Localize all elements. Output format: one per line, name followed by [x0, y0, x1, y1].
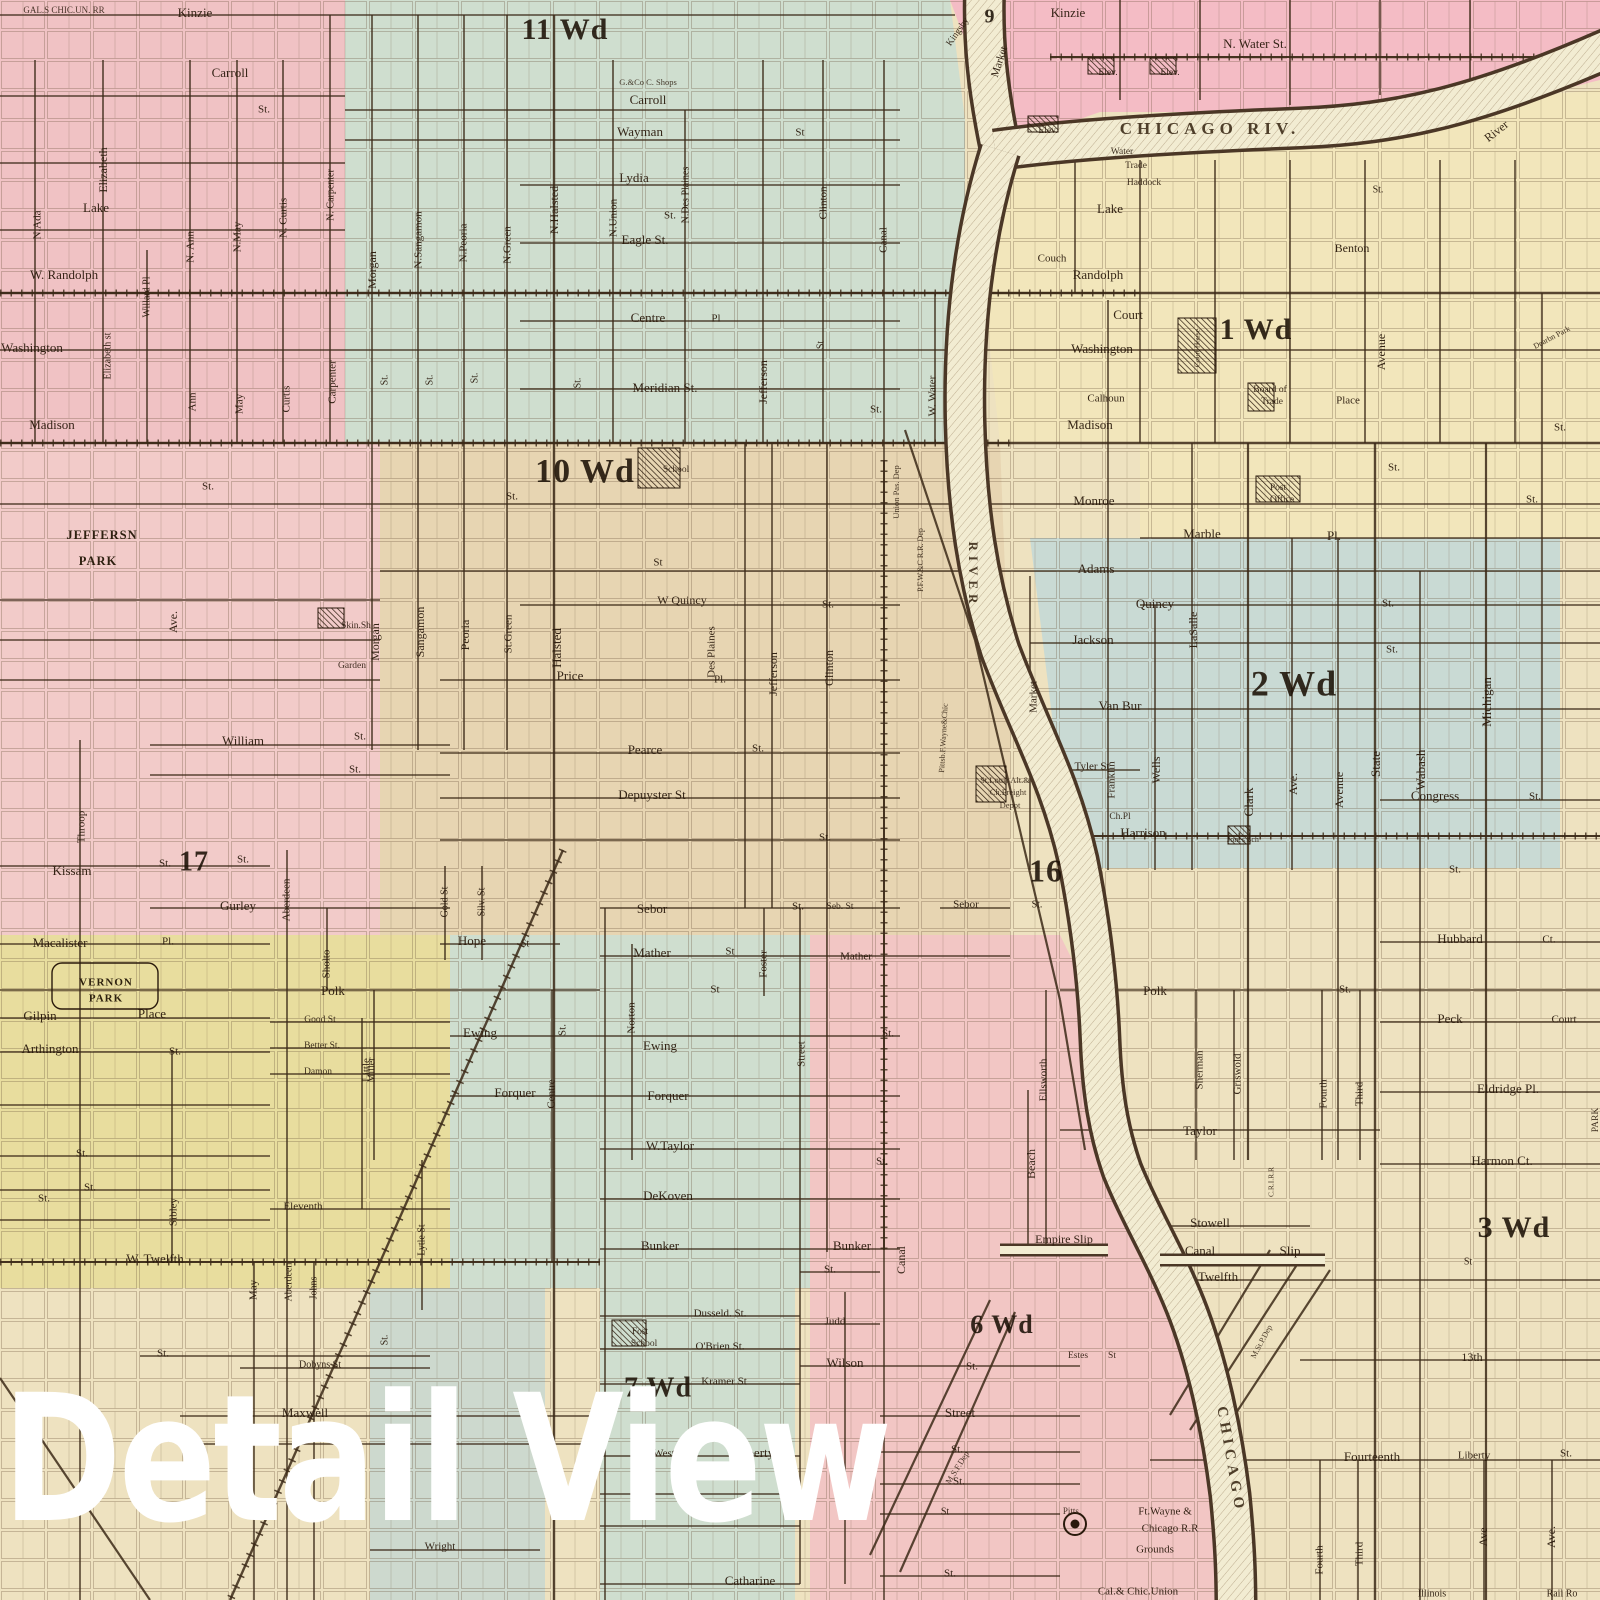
map-label: St. — [1032, 899, 1043, 910]
map-label: Quincy — [1136, 596, 1175, 611]
map-label: Peoria — [458, 619, 472, 650]
map-label: Calhoun — [1087, 393, 1125, 405]
map-label: St. — [1386, 644, 1398, 656]
map-label: St. — [349, 764, 361, 776]
map-label: St. — [752, 743, 764, 755]
map-label: Lake — [1097, 201, 1123, 216]
map-label: Empire Slip — [1035, 1232, 1093, 1246]
map-label: 2 Wd — [1251, 663, 1337, 703]
map-label: 10 Wd — [535, 453, 635, 490]
map-label: Illinois — [1418, 1588, 1446, 1599]
map-label: Depuyster St — [618, 787, 686, 802]
map-label: St.Green — [503, 614, 515, 653]
map-label: Des Plaines — [706, 626, 718, 678]
map-label: Ch.Pl — [1109, 812, 1131, 822]
map-label: St. — [379, 1335, 390, 1346]
map-label: St. — [664, 210, 676, 222]
map-label: St. — [1449, 864, 1461, 876]
map-label: Place — [1336, 395, 1360, 407]
map-label: Wabash — [1413, 749, 1428, 790]
map-label: Silv. St — [476, 887, 487, 916]
map-label: Forquer — [494, 1085, 536, 1100]
map-label: 16 — [1029, 852, 1063, 888]
map-label: Ct. — [1542, 934, 1555, 946]
map-label: St. — [1529, 791, 1541, 803]
map-label: Chicago R.R — [1142, 1523, 1199, 1535]
map-label: Carroll — [212, 65, 249, 80]
map-label: Monroe — [1073, 493, 1114, 508]
map-label: St.Louis Alt.& — [980, 775, 1030, 785]
map-label: Fourth — [1314, 1545, 1326, 1575]
map-label: Ellsworth — [1038, 1058, 1050, 1101]
map-label: Cal.& Chic.Union — [1098, 1586, 1179, 1598]
map-label: Gurley — [220, 898, 257, 913]
map-label: Twelfth — [1198, 1269, 1239, 1284]
map-label: Peck — [1437, 1011, 1463, 1026]
map-label: Halsted — [549, 628, 564, 668]
map-label: Court — [1551, 1014, 1576, 1026]
overlay-title: Detail View — [2, 1372, 889, 1548]
map-label: Centre — [546, 1079, 558, 1108]
map-label: Place — [138, 1006, 166, 1021]
map-label: W.Taylor — [646, 1138, 695, 1153]
map-label: N.Peoria — [458, 223, 470, 262]
map-label: Polk — [321, 983, 345, 998]
map-label: Canal — [1185, 1243, 1216, 1258]
map-label: Fourteenth — [1344, 1449, 1401, 1464]
map-label: Street — [945, 1405, 976, 1420]
map-label: Ann — [187, 392, 199, 411]
map-label: St. — [76, 1148, 88, 1160]
map-label: St. — [1339, 984, 1351, 996]
map-label: Elev. — [1160, 68, 1179, 78]
map-label: Aberdeen — [281, 878, 293, 921]
map-label: St. — [557, 1024, 569, 1036]
map-label: St. — [469, 373, 480, 384]
map-label: St. — [354, 731, 366, 743]
map-label: St. — [237, 854, 249, 866]
map-label: St — [653, 557, 662, 569]
map-label: DeKoven — [643, 1188, 693, 1203]
map-label: St. — [876, 1156, 888, 1168]
map-label: Seb. St — [827, 902, 854, 912]
map-label: Taylor — [1183, 1123, 1217, 1138]
map-label: Eleventh — [283, 1201, 323, 1213]
map-label: Centre — [631, 310, 666, 325]
map-label: 9 — [985, 6, 996, 28]
map-label: Price — [557, 668, 584, 683]
map-label: 17 — [179, 846, 209, 877]
map-label: O'Brien St. — [695, 1341, 744, 1353]
map-label: St. — [84, 1182, 96, 1194]
map-label: St. — [159, 858, 171, 870]
map-label: Wayman — [617, 124, 663, 139]
map-label: Fost — [632, 1327, 649, 1337]
map-label: St. — [824, 1264, 836, 1276]
map-label: St. — [38, 1193, 50, 1205]
map-label: May — [234, 393, 246, 414]
map-label: N.Sangamon — [413, 211, 425, 269]
map-label: St — [725, 946, 734, 958]
map-label: Pl — [711, 313, 720, 325]
map-label: State — [1368, 751, 1383, 777]
map-label: Harmon Ct. — [1471, 1153, 1532, 1168]
map-label: Van Bur — [1099, 698, 1143, 713]
map-label: Hope — [458, 933, 486, 948]
map-label: 13th — [1461, 1350, 1482, 1364]
map-label: Clark — [1241, 787, 1256, 816]
map-label: Marble — [1183, 526, 1221, 541]
map-label: Liberty — [1458, 1450, 1491, 1462]
map-label: Hubbard — [1437, 931, 1483, 946]
map-label: 1 Wd — [1220, 313, 1293, 346]
map-label: Morgan — [365, 251, 379, 289]
map-label: St. — [1388, 462, 1400, 474]
map-label: Ft.Wayne & — [1138, 1506, 1192, 1518]
map-label: VERNON — [79, 977, 133, 989]
map-label: Sebor — [953, 899, 979, 911]
map-label: N. Curtis — [278, 198, 290, 238]
map-label: Dusseld. St. — [694, 1308, 747, 1320]
map-label: Sibley — [168, 1197, 180, 1226]
map-label: St — [941, 1506, 950, 1517]
map-label: St. — [1554, 422, 1566, 434]
map-label: W Quincy — [657, 593, 706, 607]
map-label: Ewing — [643, 1038, 677, 1053]
map-label: Trade — [1125, 161, 1147, 171]
map-label: Office — [1270, 494, 1294, 505]
map-label: N. Carpenter — [325, 169, 336, 221]
map-label: St — [795, 127, 804, 139]
map-label: St. — [870, 404, 882, 416]
map-label: St. — [819, 832, 831, 844]
map-label: William — [222, 733, 264, 748]
map-label: Ave. — [166, 611, 180, 633]
map-label: Elizabeth — [96, 147, 110, 192]
map-label: Rail Ro — [1547, 1588, 1578, 1599]
map-label: Court — [1113, 307, 1143, 322]
map-label: St. — [966, 1361, 978, 1373]
map-label: St — [710, 984, 719, 996]
map-label: Better St. — [304, 1041, 340, 1051]
map-label: LaSalle — [1186, 612, 1200, 649]
map-label: St. — [1382, 598, 1394, 610]
map-label: Couch — [1038, 253, 1067, 265]
map-label: St. — [953, 1476, 965, 1488]
map-label: Tyler St — [1075, 761, 1110, 773]
map-label: Meridian St. — [633, 380, 698, 395]
map-label: School — [663, 465, 690, 475]
map-label: Kinzie — [178, 5, 213, 20]
map-label: N.Ada — [32, 210, 44, 239]
map-label: Forquer — [647, 1088, 689, 1103]
map-label: Gilpin — [23, 1008, 57, 1023]
map-label: N.Des Plaines — [680, 167, 691, 224]
map-label: N.May — [232, 221, 244, 252]
map-label: Court House — [1193, 328, 1202, 367]
map-label: Congress — [1411, 788, 1459, 803]
map-label: St. — [882, 1028, 894, 1040]
map-label: Sebor — [637, 901, 668, 916]
map-label: Bunker — [641, 1238, 680, 1253]
map-label: Union Pas. Dep — [891, 465, 901, 519]
map-label: N. Ann — [185, 231, 197, 263]
map-label: St. — [951, 1444, 963, 1456]
map-label: Post — [1270, 483, 1287, 493]
map-label: Kissam — [53, 863, 92, 878]
map-label: Eagle St. — [622, 232, 669, 247]
map-label: Adams — [1078, 561, 1115, 576]
map-label: W. Water — [927, 375, 939, 416]
map-label: St. — [1373, 184, 1384, 195]
map-label: St — [1464, 1256, 1473, 1267]
map-label: Jefferson — [756, 360, 770, 404]
map-label: RIVER — [966, 542, 981, 609]
map-label: Catharine — [725, 1573, 776, 1588]
map-label: Elev. — [1098, 68, 1117, 78]
map-label: St. — [169, 1046, 181, 1058]
map-label: Trade — [1261, 397, 1283, 407]
map-label: Clinton — [822, 650, 836, 686]
map-label: 6 Wd — [970, 1310, 1034, 1339]
map-label: PARK — [79, 554, 118, 568]
map-label: Pl. — [1327, 528, 1341, 543]
map-label: St. — [258, 104, 270, 116]
map-label: Clinton — [818, 186, 830, 220]
map-label: Mather — [633, 945, 671, 960]
map-label: CHICAGO RIV. — [1120, 119, 1301, 138]
map-label: Harrison — [1120, 825, 1166, 840]
map-label: Pitts. — [1063, 1506, 1081, 1516]
map-label: Throop — [76, 810, 88, 843]
map-label: Grounds — [1136, 1544, 1174, 1556]
map-label: Sangamon — [413, 607, 427, 658]
map-label: St. — [1560, 1448, 1572, 1460]
map-label: PARK — [1591, 1108, 1600, 1133]
map-label: Lytle St — [416, 1224, 427, 1256]
map-label: Madison — [29, 417, 75, 432]
map-label: Good St — [304, 1015, 336, 1025]
map-label: Michigan — [1479, 677, 1494, 727]
map-label: Bunker — [833, 1238, 872, 1253]
map-label: Haddock — [1127, 178, 1162, 188]
map-label: St — [1108, 1351, 1116, 1361]
map-label: Madison — [1067, 417, 1113, 432]
map-label: Stowell — [1190, 1215, 1230, 1230]
map-label: Elizabeth st — [102, 332, 113, 379]
map-label: P.F.W.&C R.R. Dep — [916, 528, 925, 592]
map-label: Aberdeen — [283, 1263, 294, 1302]
map-label: Slip — [1280, 1243, 1301, 1258]
map-label: Avenue — [1332, 772, 1346, 808]
map-label: 11 Wd — [522, 13, 609, 46]
map-label: Jefferson — [766, 652, 780, 696]
map-label: Macalister — [33, 935, 89, 950]
map-label: St. — [944, 1568, 956, 1580]
map-label: W. Randolph — [30, 267, 99, 282]
map-label: Skin.Sh — [341, 621, 371, 631]
map-label: Street — [796, 1041, 808, 1067]
map-label: Carroll — [630, 92, 667, 107]
map-label: Foster — [758, 950, 770, 978]
map-label: Gold St — [439, 886, 450, 917]
map-label: Arthington — [21, 1041, 79, 1056]
map-screenshot: GAL.S CHIC.UN. RRKinzie911 WdKinzieN. Wa… — [0, 0, 1600, 1600]
map-label: Fourth — [1318, 1079, 1330, 1109]
map-label: N.Green — [502, 226, 514, 264]
map-label: Ave. — [1286, 773, 1300, 795]
map-label: C.R.I.R.R — [1267, 1167, 1276, 1197]
map-label: Board of — [1253, 384, 1287, 395]
map-label: 3 Wd — [1478, 1211, 1551, 1244]
map-label: St — [815, 341, 826, 350]
map-label: St. — [379, 375, 390, 386]
map-label: Sholto — [321, 949, 333, 978]
map-label: Kinzie — [1051, 5, 1086, 20]
map-label: St. — [506, 491, 518, 503]
map-label: Jones Sch — [1227, 835, 1259, 844]
map-label: N. Water St. — [1223, 36, 1287, 51]
map-label: Judd — [825, 1316, 846, 1328]
map-label: Market — [1028, 681, 1040, 713]
map-label: Third — [1354, 1541, 1366, 1566]
map-label: Canal — [894, 1245, 908, 1274]
map-label: Water — [1111, 147, 1134, 157]
map-label: Elev. — [1038, 126, 1057, 136]
map-label: Willard Pl — [141, 276, 152, 317]
map-label: Curtis — [281, 386, 293, 413]
map-label: Norton — [626, 1002, 638, 1034]
map-label: N.Union — [608, 198, 620, 237]
map-label: Ave — [1476, 1527, 1490, 1546]
map-label: St. — [572, 378, 583, 389]
map-label: Third — [1354, 1081, 1366, 1106]
map-label: Ewing — [463, 1025, 497, 1040]
map-label: PARK — [89, 993, 123, 1005]
map-label: Avenue — [1374, 334, 1388, 370]
map-label: Sherman — [1194, 1050, 1206, 1090]
map-label: GAL.S CHIC.UN. RR — [23, 5, 104, 15]
map-label: Benton — [1335, 241, 1370, 255]
map-label: Jackson — [1072, 632, 1114, 647]
map-label: W. Twelfth — [126, 1251, 184, 1266]
map-label: St. — [202, 481, 214, 493]
map-label: Carpenter — [327, 360, 339, 404]
map-label: Mather — [840, 951, 872, 963]
map-label: Ave. — [1544, 1526, 1558, 1548]
map-label: Lydia — [619, 170, 649, 185]
map-label: St. — [822, 599, 834, 611]
map-label: Damon — [304, 1067, 332, 1077]
map-label: St. — [792, 901, 804, 913]
map-label: Pl. — [162, 936, 174, 948]
map-label: Depot — [1000, 800, 1021, 810]
map-label: Ch.Freight — [990, 787, 1027, 797]
map-label: Eldridge Pl. — [1477, 1081, 1539, 1096]
map-label: Morgan — [368, 623, 382, 661]
map-label: Randolph — [1073, 267, 1124, 282]
map-label: Miller — [366, 1057, 377, 1083]
map-label: Lake — [83, 200, 109, 215]
map-label: May — [248, 1279, 260, 1300]
map-label: Canal — [878, 227, 890, 253]
map-label: St — [521, 938, 530, 949]
map-label: School — [631, 1339, 658, 1349]
map-label: JEFFERSN — [66, 528, 137, 542]
map-label: N.Halsted — [547, 186, 561, 234]
map-label: Garden — [338, 661, 366, 671]
map-label: St. — [1526, 494, 1538, 506]
map-label: Polk — [1143, 983, 1167, 998]
map-label: Beach — [1024, 1149, 1038, 1179]
map-label: Washington — [1, 340, 63, 355]
map-label: Washington — [1071, 341, 1133, 356]
map-label: Griswold — [1232, 1053, 1244, 1094]
map-label: Estes — [1068, 1351, 1088, 1361]
map-label: Wells — [1149, 756, 1163, 783]
map-label: St. — [424, 375, 435, 386]
map-label: G.&Co C. Shops — [619, 77, 677, 87]
map-label: Pearce — [628, 742, 663, 757]
map-label: Johns — [308, 1277, 319, 1300]
